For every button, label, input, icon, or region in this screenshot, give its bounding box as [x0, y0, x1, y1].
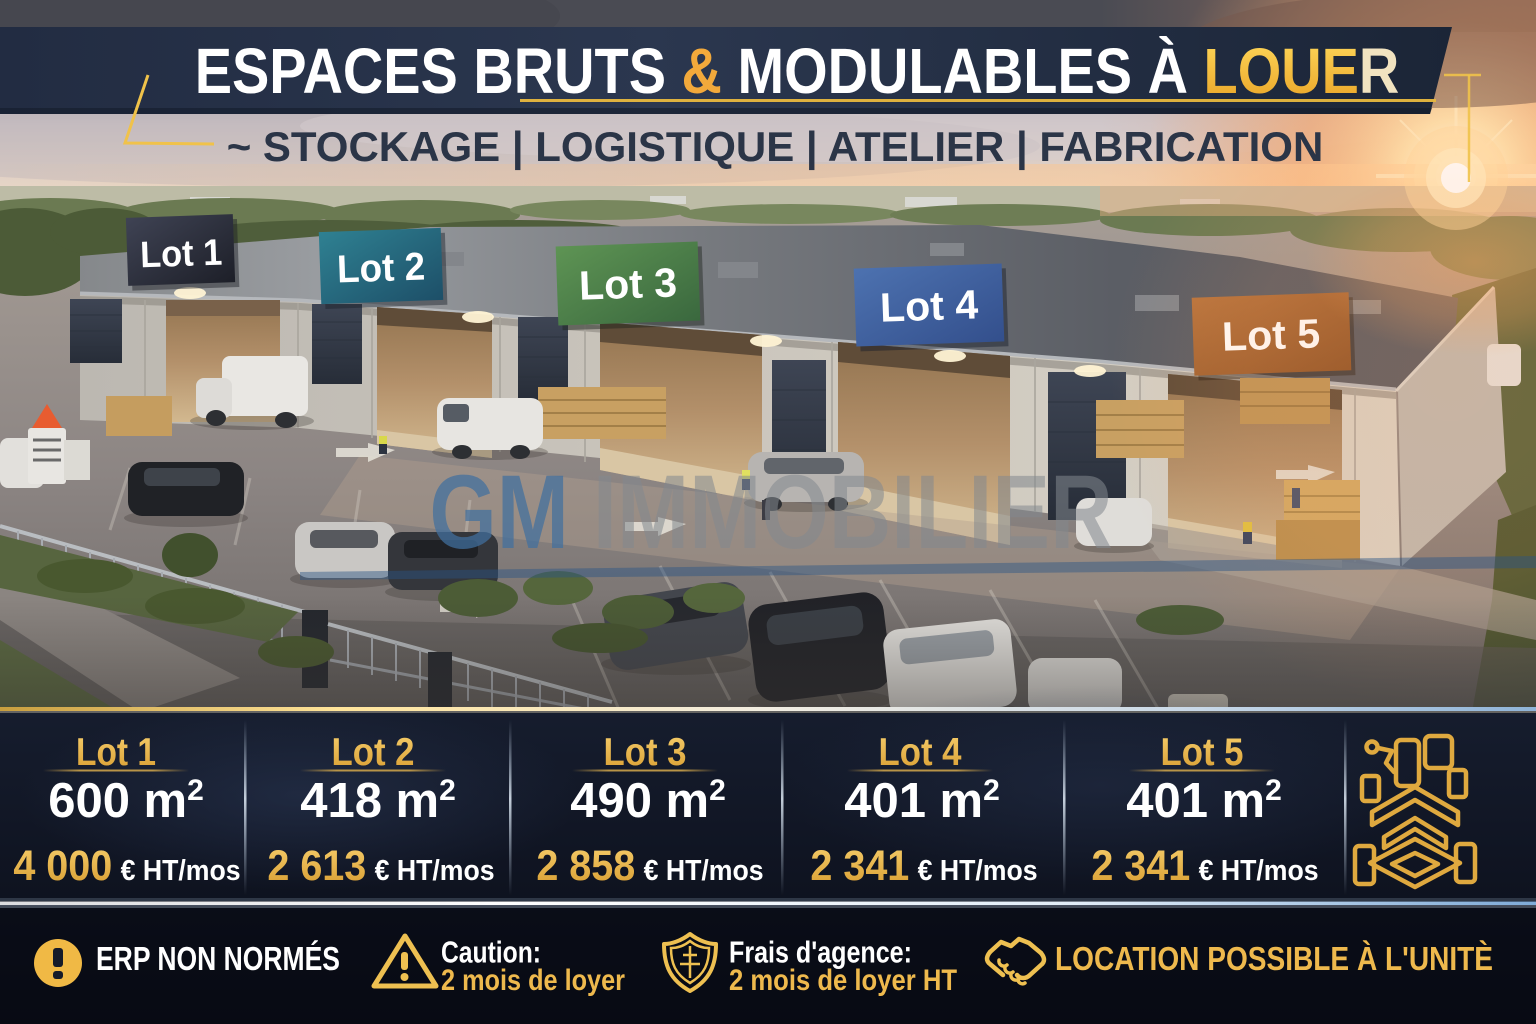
svg-text:Lot 3: Lot 3	[604, 731, 687, 774]
svg-text:GM IMMOBILIER: GM IMMOBILIER	[429, 454, 1112, 571]
svg-text:401 m2: 401 m2	[1126, 774, 1282, 828]
svg-text:Lot 4: Lot 4	[879, 281, 979, 330]
svg-text:Lot 2: Lot 2	[336, 245, 425, 291]
svg-text:490 m2: 490 m2	[570, 774, 726, 828]
svg-text:Lot 4: Lot 4	[879, 731, 962, 774]
svg-text:2 mois de loyer: 2 mois de loyer	[441, 964, 625, 997]
svg-text:600 m2: 600 m2	[48, 774, 204, 828]
svg-text:Lot 3: Lot 3	[578, 259, 678, 308]
svg-text:Lot 5: Lot 5	[1161, 731, 1244, 774]
svg-text:LOCATION POSSIBLE À L'UNITÈ: LOCATION POSSIBLE À L'UNITÈ	[1055, 940, 1493, 977]
svg-text:Lot 2: Lot 2	[332, 731, 415, 774]
svg-text:2 mois de loyer HT: 2 mois de loyer HT	[729, 964, 957, 997]
svg-text:ESPACES BRUTS & MODULABLES À L: ESPACES BRUTS & MODULABLES À LOUER	[195, 35, 1400, 106]
svg-text:Lot 1: Lot 1	[76, 731, 156, 774]
svg-text:~ STOCKAGE | LOGISTIQUE | ATEL: ~ STOCKAGE | LOGISTIQUE | ATELIER | FABR…	[227, 123, 1324, 171]
svg-text:ERP NON NORMÉS: ERP NON NORMÉS	[96, 940, 340, 977]
svg-text:418 m2: 418 m2	[300, 774, 456, 828]
svg-text:Lot 1: Lot 1	[139, 232, 222, 276]
svg-text:401 m2: 401 m2	[844, 774, 1000, 828]
